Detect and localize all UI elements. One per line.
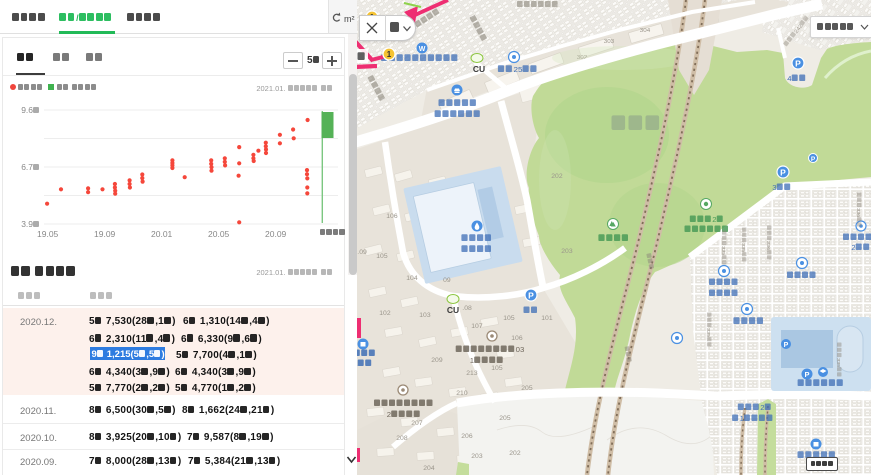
svg-text:335: 335 bbox=[835, 358, 841, 367]
svg-text:P: P bbox=[780, 168, 786, 178]
svg-text:P: P bbox=[528, 291, 534, 301]
svg-text:303: 303 bbox=[604, 39, 614, 45]
svg-text:CU: CU bbox=[447, 305, 459, 315]
svg-text:304: 304 bbox=[640, 28, 650, 34]
svg-text:335: 335 bbox=[705, 328, 711, 337]
svg-text:209: 209 bbox=[431, 357, 443, 364]
svg-text:2: 2 bbox=[387, 411, 391, 419]
svg-text:105: 105 bbox=[491, 365, 503, 372]
svg-text:1: 1 bbox=[387, 50, 392, 59]
svg-text:213: 213 bbox=[466, 370, 478, 377]
svg-text:2: 2 bbox=[712, 216, 716, 224]
svg-text:202: 202 bbox=[551, 173, 563, 180]
svg-text:105: 105 bbox=[376, 253, 388, 260]
svg-text:202: 202 bbox=[509, 450, 521, 457]
svg-text:205: 205 bbox=[499, 415, 511, 422]
svg-text:203: 203 bbox=[471, 453, 483, 460]
svg-text:106: 106 bbox=[511, 335, 523, 342]
svg-text:.09: .09 bbox=[357, 249, 367, 256]
svg-text:335: 335 bbox=[740, 243, 746, 252]
svg-text:336: 336 bbox=[855, 208, 861, 217]
svg-text:101: 101 bbox=[541, 315, 553, 322]
svg-text:.08: .08 bbox=[462, 305, 472, 312]
svg-text:3: 3 bbox=[772, 184, 776, 192]
svg-text:205: 205 bbox=[521, 385, 533, 392]
svg-text:210: 210 bbox=[456, 390, 468, 397]
svg-text:2: 2 bbox=[851, 244, 855, 252]
svg-text:335: 335 bbox=[720, 246, 726, 255]
svg-text:09: 09 bbox=[443, 277, 451, 284]
svg-text:W: W bbox=[419, 46, 426, 53]
svg-text:207: 207 bbox=[411, 420, 423, 427]
svg-text:25: 25 bbox=[514, 65, 523, 74]
svg-text:03: 03 bbox=[516, 346, 525, 354]
svg-text:204: 204 bbox=[423, 465, 435, 472]
svg-text:336: 336 bbox=[765, 241, 771, 250]
svg-text:1: 1 bbox=[357, 360, 358, 368]
svg-text:104: 104 bbox=[406, 275, 418, 282]
svg-text:P: P bbox=[784, 342, 789, 349]
svg-text:203: 203 bbox=[561, 248, 573, 255]
svg-text:102: 102 bbox=[379, 310, 391, 317]
svg-text:107: 107 bbox=[471, 323, 483, 330]
svg-text:105: 105 bbox=[503, 315, 515, 322]
svg-text:1: 1 bbox=[740, 415, 744, 423]
svg-text:106: 106 bbox=[386, 213, 398, 220]
svg-text:m²: m² bbox=[344, 14, 355, 24]
svg-text:P: P bbox=[804, 370, 809, 379]
svg-text:206: 206 bbox=[461, 433, 473, 440]
svg-text:CU: CU bbox=[473, 64, 485, 74]
svg-text:2: 2 bbox=[760, 404, 764, 412]
svg-text:208: 208 bbox=[396, 435, 408, 442]
svg-text:P: P bbox=[811, 156, 816, 163]
svg-text:P: P bbox=[795, 59, 801, 69]
svg-text:1: 1 bbox=[470, 357, 474, 365]
svg-text:103: 103 bbox=[419, 312, 431, 319]
svg-text:4: 4 bbox=[787, 75, 791, 83]
